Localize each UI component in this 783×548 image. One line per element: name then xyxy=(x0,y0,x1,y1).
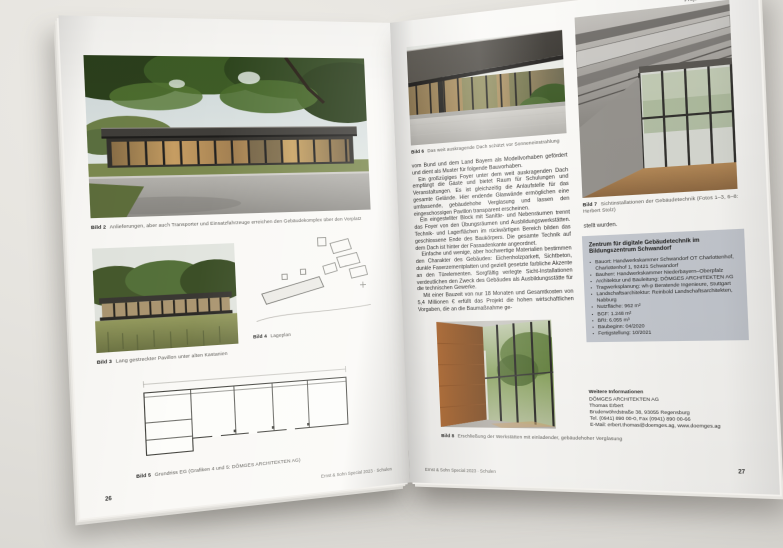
floorplan-drawing xyxy=(132,356,359,467)
caption-bild2-text: Anlieferungen, aber auch Transporter und… xyxy=(109,216,361,230)
caption-bild3-label: Bild 3 xyxy=(97,359,112,365)
floorplan-art xyxy=(132,356,359,467)
page-left: Bild 2 Anlieferungen, aber auch Transpor… xyxy=(58,15,410,518)
photo-building-exterior-art xyxy=(83,55,370,218)
article-paragraph-4: Einfache und wenige, aber hochwertige Ma… xyxy=(416,246,574,294)
caption-bild4-label: Bild 4 xyxy=(253,333,267,339)
photo-building-exterior xyxy=(83,55,370,218)
photo-meadow-pavilion xyxy=(92,243,239,353)
caption-bild4-text: Lageplan xyxy=(270,332,291,339)
infobox-title: Zentrum für digitale Gebäudetechnik im B… xyxy=(589,236,738,256)
photo-ceiling-art xyxy=(575,0,738,198)
caption-bild8: Bild 8 Erschließung der Werkstätten mit … xyxy=(441,433,653,443)
page-left-content: Bild 2 Anlieferungen, aber auch Transpor… xyxy=(58,15,410,518)
caption-bild3-text: Lang gestreckter Pavillon unter alten Ka… xyxy=(116,351,228,364)
page-number-right: 27 xyxy=(738,469,745,476)
infobox-item: Fertigstellung: 10/2021 xyxy=(593,328,742,337)
caption-bild8-label: Bild 8 xyxy=(441,433,454,438)
magazine-spread: Bild 2 Anlieferungen, aber auch Transpor… xyxy=(80,8,749,496)
article-continuation: stellt wurden. xyxy=(584,215,742,230)
photo-roof-overhang xyxy=(407,30,567,146)
caption-bild8-text: Erschließung der Werkstätten mit einlade… xyxy=(458,433,623,441)
caption-bild2-label: Bild 2 xyxy=(91,224,106,230)
page-number-left: 26 xyxy=(105,496,112,503)
caption-bild7-label: Bild 7 xyxy=(583,201,598,207)
caption-bild2: Bild 2 Anlieferungen, aber auch Transpor… xyxy=(91,216,373,232)
siteplan-art xyxy=(249,230,376,330)
caption-bild6-label: Bild 6 xyxy=(411,149,424,155)
photo-meadow-pavilion-art xyxy=(92,243,239,353)
page-right: Projektberichte xyxy=(390,0,780,495)
photo-roof-overhang-art xyxy=(407,30,567,146)
article-text-column: vom Bund und dem Land Bayern als Modellv… xyxy=(412,152,575,314)
imprint-right: Ernst & Sohn Special 2023 · Schulen xyxy=(425,467,496,474)
project-infobox: Zentrum für digitale Gebäudetechnik im B… xyxy=(582,229,749,342)
imprint-left: Ernst & Sohn Special 2023 · Schulen xyxy=(321,466,392,479)
photo-corridor-art xyxy=(436,320,556,429)
photo-ceiling-installations xyxy=(575,0,738,198)
desk-scene: Bild 2 Anlieferungen, aber auch Transpor… xyxy=(0,0,783,548)
caption-bild5-label: Bild 5 xyxy=(136,472,151,479)
photo-corridor xyxy=(436,320,556,429)
article-paragraph-5: Mit einer Bauzeit von nur 18 Monaten und… xyxy=(417,289,574,314)
contact-line: E-Mail: erbert.thomas@doemges.ag, www.do… xyxy=(590,422,750,431)
infobox-list: Bauort: Handwerkskammer Schwandorf OT Ch… xyxy=(589,253,741,336)
contact-heading: Weitere Informationen xyxy=(589,389,749,396)
page-right-content: Projektberichte xyxy=(390,0,780,495)
contact-block: Weitere Informationen DÖMGES ARCHITEKTEN… xyxy=(589,389,751,431)
siteplan-drawing xyxy=(249,230,376,330)
